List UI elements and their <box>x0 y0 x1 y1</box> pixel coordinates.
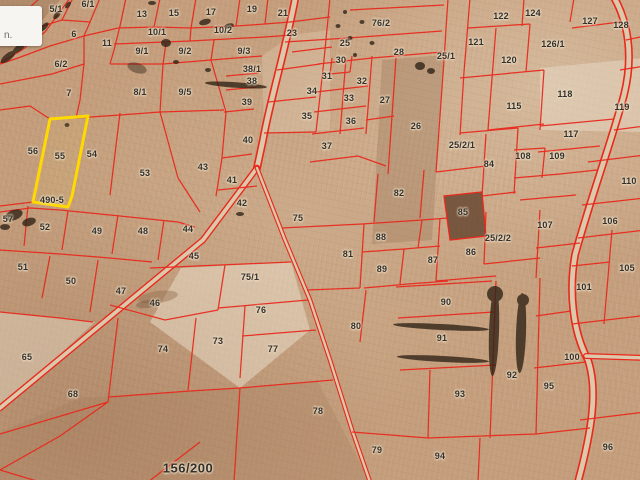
highlighted-parcel-55[interactable] <box>33 116 88 207</box>
overlay-partial-text: n. <box>4 30 12 41</box>
dark-parcel-85 <box>444 192 486 240</box>
map-viewport[interactable]: 5/16/161113151719212310/110/29/19/29/36/… <box>0 0 640 480</box>
cadastral-map-layer <box>0 0 640 480</box>
map-overlay-partial: n. <box>0 6 42 46</box>
